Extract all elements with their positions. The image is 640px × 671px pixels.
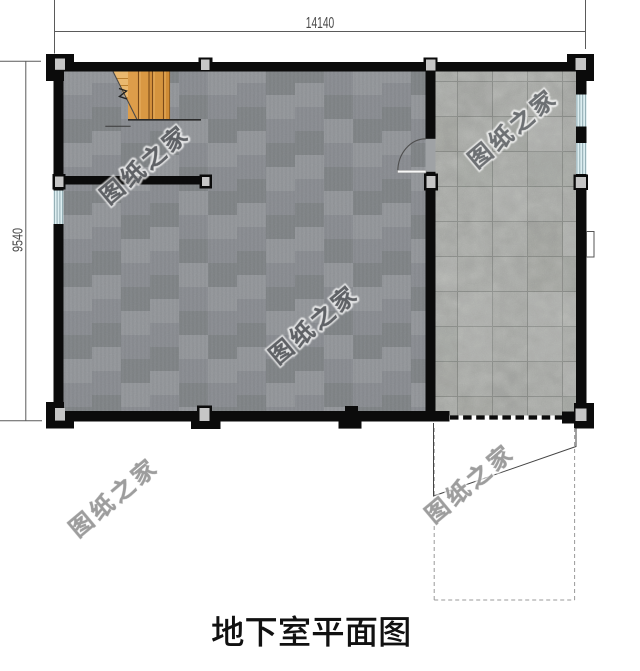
svg-text:14140: 14140 bbox=[306, 14, 334, 32]
svg-text:9540: 9540 bbox=[9, 228, 26, 252]
